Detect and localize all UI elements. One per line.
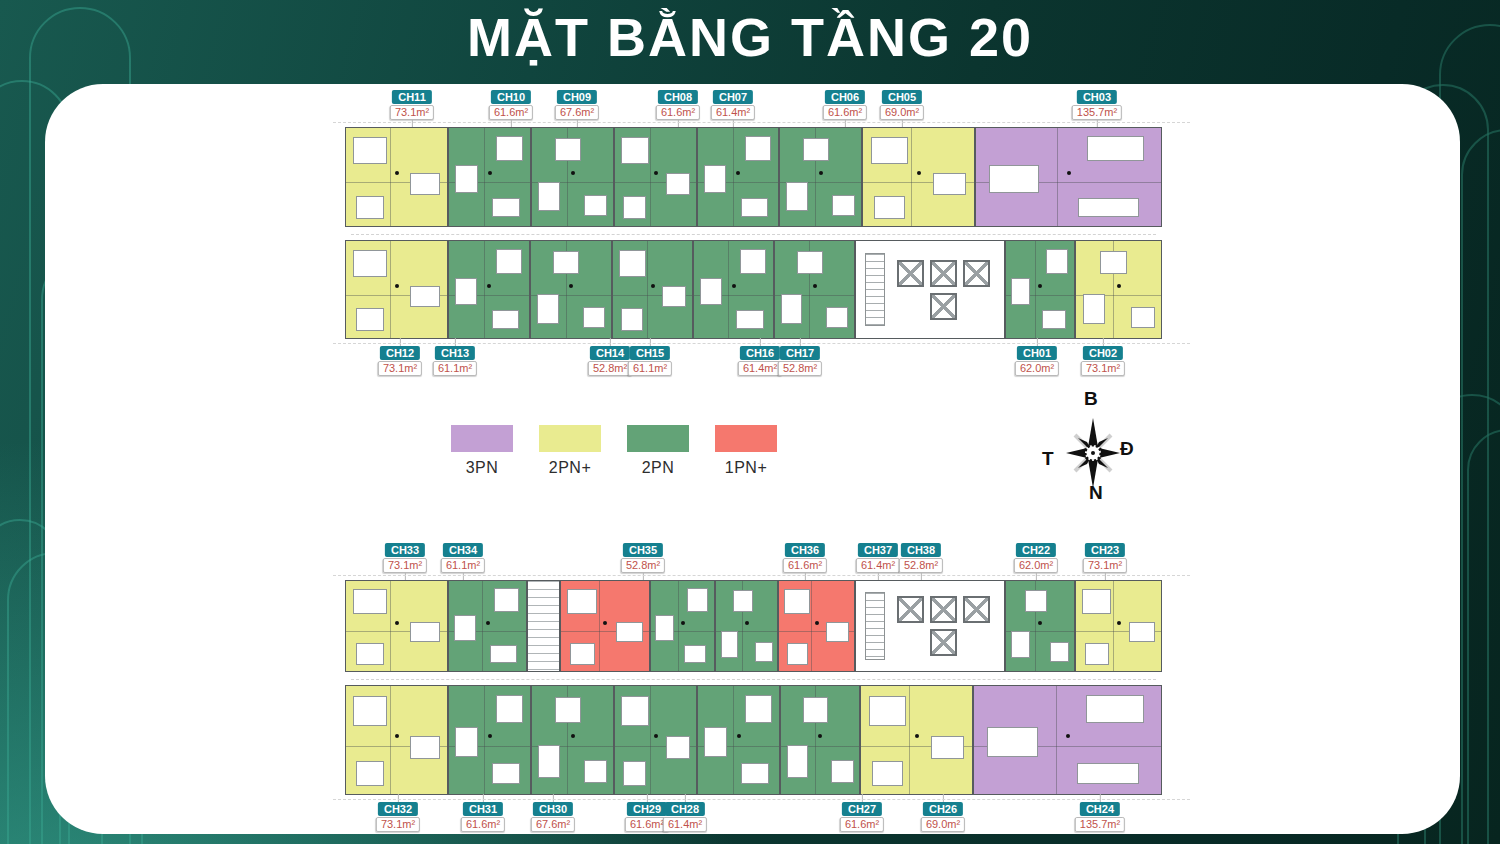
furniture-shape bbox=[797, 251, 823, 274]
page-title: MẶT BẰNG TẦNG 20 bbox=[0, 6, 1500, 68]
furniture-shape bbox=[741, 763, 769, 784]
leader-anchor-dot bbox=[571, 171, 575, 175]
unit-area: 67.6m² bbox=[531, 817, 575, 832]
furniture-shape bbox=[803, 138, 829, 162]
unit-CH37 bbox=[715, 580, 778, 672]
unit-label-CH30: CH3067.6m² bbox=[531, 802, 575, 832]
unit-label-CH07: CH0761.4m² bbox=[711, 90, 755, 120]
legend-item-2PN: 2PN bbox=[627, 425, 689, 477]
furniture-shape bbox=[555, 697, 581, 723]
unit-id-badge: CH02 bbox=[1083, 346, 1123, 360]
unit-id-badge: CH09 bbox=[557, 90, 597, 104]
unit-id-badge: CH35 bbox=[623, 543, 663, 557]
unit-CH27 bbox=[780, 685, 860, 795]
furniture-shape bbox=[356, 761, 384, 787]
label-row-below: CH1273.1m²CH1361.1m²CH1452.8m²CH1561.1m²… bbox=[345, 339, 1162, 381]
furniture-shape bbox=[869, 696, 907, 726]
unit-label-CH08: CH0861.6m² bbox=[656, 90, 700, 120]
furniture-shape bbox=[555, 138, 581, 162]
stairs bbox=[865, 253, 885, 326]
leader-anchor-dot bbox=[813, 284, 817, 288]
unit-CH13 bbox=[448, 240, 530, 339]
furniture-shape bbox=[721, 631, 738, 658]
unit-label-CH17: CH1752.8m² bbox=[778, 346, 822, 376]
unit-id-badge: CH10 bbox=[491, 90, 531, 104]
unit-CH29 bbox=[614, 685, 697, 795]
unit-id-badge: CH11 bbox=[392, 90, 432, 104]
furniture-shape bbox=[619, 250, 646, 277]
unit-label-CH34: CH3461.1m² bbox=[441, 543, 485, 573]
legend: 3PN2PN+2PN1PN+ bbox=[451, 425, 777, 477]
unit-area: 52.8m² bbox=[899, 558, 943, 573]
unit-area: 135.7m² bbox=[1075, 817, 1125, 832]
furniture-shape bbox=[356, 308, 384, 331]
furniture-shape bbox=[1086, 695, 1144, 723]
furniture-shape bbox=[826, 307, 849, 328]
legend-swatch bbox=[451, 425, 513, 452]
leader-anchor-dot bbox=[395, 171, 399, 175]
unit-label-CH02: CH0273.1m² bbox=[1081, 346, 1125, 376]
furniture-shape bbox=[872, 761, 903, 787]
furniture-shape bbox=[492, 763, 520, 784]
furniture-shape bbox=[621, 308, 644, 331]
furniture-shape bbox=[353, 250, 387, 277]
unit-area: 61.4m² bbox=[738, 361, 782, 376]
page: { "title": "MẶT BẰNG TẦNG 20", "legend":… bbox=[0, 0, 1500, 844]
unit-area: 73.1m² bbox=[1081, 361, 1125, 376]
unit-id-badge: CH22 bbox=[1016, 543, 1056, 557]
unit-id-badge: CH12 bbox=[380, 346, 420, 360]
unit-CH35 bbox=[560, 580, 650, 672]
furniture-shape bbox=[1011, 631, 1029, 658]
unit-id-badge: CH24 bbox=[1080, 802, 1120, 816]
elevator-bank bbox=[891, 260, 995, 320]
leader-anchor-dot bbox=[395, 621, 399, 625]
furniture-shape bbox=[1050, 642, 1070, 662]
unit-area: 73.1m² bbox=[1083, 558, 1127, 573]
unit-id-badge: CH05 bbox=[882, 90, 922, 104]
unit-label-CH15: CH1561.1m² bbox=[628, 346, 672, 376]
dashed-guide-line bbox=[333, 343, 1190, 344]
leader-anchor-dot bbox=[732, 284, 736, 288]
unit-CH09 bbox=[531, 127, 614, 227]
furniture-shape bbox=[1131, 307, 1155, 328]
legend-label: 2PN+ bbox=[549, 459, 591, 477]
leader-anchor-dot bbox=[1038, 284, 1042, 288]
dashed-guide-line bbox=[333, 575, 1190, 576]
unit-label-CH01: CH0162.0m² bbox=[1015, 346, 1059, 376]
furniture-shape bbox=[623, 196, 646, 220]
unit-id-badge: CH15 bbox=[630, 346, 670, 360]
leader-anchor-dot bbox=[488, 734, 492, 738]
furniture-shape bbox=[356, 196, 384, 220]
legend-item-3PN: 3PN bbox=[451, 425, 513, 477]
furniture-shape bbox=[826, 622, 849, 642]
furniture-shape bbox=[871, 137, 909, 164]
furniture-shape bbox=[745, 136, 771, 162]
unit-label-CH12: CH1273.1m² bbox=[378, 346, 422, 376]
leader-anchor-dot bbox=[737, 734, 741, 738]
furniture-shape bbox=[496, 695, 522, 723]
dashed-guide-line bbox=[333, 122, 1190, 123]
unit-area: 52.8m² bbox=[621, 558, 665, 573]
unit-area: 61.6m² bbox=[461, 817, 505, 832]
compass: B Đ N T bbox=[1044, 392, 1148, 504]
furniture-shape bbox=[704, 727, 727, 757]
furniture-shape bbox=[733, 590, 753, 612]
unit-id-badge: CH37 bbox=[858, 543, 898, 557]
furniture-shape bbox=[621, 137, 649, 164]
leader-anchor-dot bbox=[681, 621, 685, 625]
unit-id-badge: CH13 bbox=[435, 346, 475, 360]
unit-id-badge: CH36 bbox=[785, 543, 825, 557]
unit-CH08 bbox=[614, 127, 697, 227]
unit-CH30 bbox=[531, 685, 614, 795]
leader-anchor-dot bbox=[1066, 734, 1070, 738]
unit-id-badge: CH08 bbox=[658, 90, 698, 104]
compass-north-label: B bbox=[1084, 388, 1098, 410]
unit-id-badge: CH34 bbox=[443, 543, 483, 557]
unit-area: 61.6m² bbox=[783, 558, 827, 573]
furniture-shape bbox=[989, 165, 1039, 192]
furniture-shape bbox=[455, 165, 478, 192]
leader-anchor-dot bbox=[487, 284, 491, 288]
leader-anchor-dot bbox=[917, 171, 921, 175]
furniture-shape bbox=[538, 745, 559, 777]
unit-area: 73.1m² bbox=[390, 105, 434, 120]
elevator-core bbox=[855, 240, 1005, 339]
unit-CH33 bbox=[345, 580, 448, 672]
furniture-shape bbox=[455, 727, 478, 757]
unit-id-badge: CH28 bbox=[665, 802, 705, 816]
leader-anchor-dot bbox=[1117, 621, 1121, 625]
furniture-shape bbox=[353, 696, 387, 726]
dashed-guide-line bbox=[333, 799, 1190, 800]
furniture-shape bbox=[492, 310, 520, 329]
furniture-shape bbox=[553, 251, 579, 274]
furniture-shape bbox=[353, 137, 387, 164]
unit-row bbox=[345, 127, 1162, 227]
unit-id-badge: CH14 bbox=[590, 346, 630, 360]
furniture-shape bbox=[784, 589, 810, 614]
leader-anchor-dot bbox=[736, 171, 740, 175]
unit-label-CH24: CH24135.7m² bbox=[1075, 802, 1125, 832]
leader-anchor-dot bbox=[651, 284, 655, 288]
unit-area: 61.4m² bbox=[856, 558, 900, 573]
unit-CH02 bbox=[1075, 240, 1162, 339]
furniture-shape bbox=[410, 173, 440, 195]
unit-id-badge: CH33 bbox=[385, 543, 425, 557]
unit-label-CH11: CH1173.1m² bbox=[390, 90, 434, 120]
unit-area: 135.7m² bbox=[1072, 105, 1122, 120]
furniture-shape bbox=[616, 622, 643, 642]
furniture-shape bbox=[494, 588, 519, 612]
furniture-shape bbox=[786, 182, 807, 211]
leader-anchor-dot bbox=[1067, 171, 1071, 175]
furniture-shape bbox=[1082, 589, 1111, 614]
furniture-shape bbox=[1083, 294, 1105, 323]
unit-label-CH10: CH1061.6m² bbox=[489, 90, 533, 120]
furniture-shape bbox=[584, 760, 607, 784]
furniture-shape bbox=[1011, 278, 1031, 305]
unit-area: 73.1m² bbox=[383, 558, 427, 573]
unit-area: 61.6m² bbox=[840, 817, 884, 832]
elevator-icon bbox=[963, 260, 990, 287]
legend-label: 3PN bbox=[466, 459, 499, 477]
unit-id-badge: CH38 bbox=[901, 543, 941, 557]
legend-swatch bbox=[627, 425, 689, 452]
leader-anchor-dot bbox=[1117, 284, 1121, 288]
unit-CH23 bbox=[1075, 580, 1162, 672]
furniture-shape bbox=[666, 736, 691, 760]
unit-CH10 bbox=[448, 127, 531, 227]
unit-label-CH22: CH2262.0m² bbox=[1014, 543, 1058, 573]
building-strip bbox=[345, 580, 1162, 795]
unit-label-CH33: CH3373.1m² bbox=[383, 543, 427, 573]
unit-id-badge: CH01 bbox=[1017, 346, 1057, 360]
unit-area: 62.0m² bbox=[1015, 361, 1059, 376]
furniture-shape bbox=[1129, 622, 1155, 642]
furniture-shape bbox=[1078, 198, 1139, 218]
furniture-shape bbox=[1042, 310, 1066, 329]
leader-anchor-dot bbox=[818, 734, 822, 738]
unit-label-CH23: CH2373.1m² bbox=[1083, 543, 1127, 573]
floor-plan-top-wing: CH1173.1m²CH1061.6m²CH0967.6m²CH0861.6m²… bbox=[345, 88, 1162, 381]
elevator-icon bbox=[930, 596, 957, 623]
unit-label-CH32: CH3273.1m² bbox=[376, 802, 420, 832]
unit-area: 69.0m² bbox=[880, 105, 924, 120]
unit-area: 69.0m² bbox=[921, 817, 965, 832]
legend-item-2PN+: 2PN+ bbox=[539, 425, 601, 477]
furniture-shape bbox=[666, 173, 691, 195]
unit-CH07 bbox=[697, 127, 779, 227]
leader-anchor-dot bbox=[571, 734, 575, 738]
label-row-below: CH3273.1m²CH3161.6m²CH3067.6m²CH2961.6m²… bbox=[345, 795, 1162, 837]
furniture-shape bbox=[455, 278, 478, 305]
unit-area: 67.6m² bbox=[555, 105, 599, 120]
furniture-shape bbox=[623, 761, 646, 787]
leader-anchor-dot bbox=[395, 734, 399, 738]
furniture-shape bbox=[684, 645, 706, 663]
unit-id-badge: CH16 bbox=[740, 346, 780, 360]
furniture-shape bbox=[410, 736, 440, 760]
legend-item-1PN+: 1PN+ bbox=[715, 425, 777, 477]
unit-label-CH35: CH3552.8m² bbox=[621, 543, 665, 573]
unit-id-badge: CH06 bbox=[825, 90, 865, 104]
unit-CH34 bbox=[448, 580, 527, 672]
unit-label-CH38: CH3852.8m² bbox=[899, 543, 943, 573]
unit-label-CH16: CH1661.4m² bbox=[738, 346, 782, 376]
furniture-shape bbox=[931, 736, 964, 760]
unit-label-CH14: CH1452.8m² bbox=[588, 346, 632, 376]
unit-id-badge: CH29 bbox=[627, 802, 667, 816]
unit-area: 61.6m² bbox=[823, 105, 867, 120]
unit-row bbox=[345, 580, 1162, 672]
stairwell bbox=[527, 580, 560, 672]
unit-row bbox=[345, 240, 1162, 339]
furniture-shape bbox=[1100, 251, 1128, 274]
leader-anchor-dot bbox=[654, 171, 658, 175]
unit-area: 52.8m² bbox=[778, 361, 822, 376]
unit-CH12 bbox=[345, 240, 448, 339]
unit-CH03 bbox=[975, 127, 1162, 227]
leader-anchor-dot bbox=[819, 171, 823, 175]
furniture-shape bbox=[687, 588, 708, 612]
stairs bbox=[865, 592, 885, 659]
furniture-shape bbox=[410, 622, 440, 642]
furniture-shape bbox=[621, 696, 649, 726]
furniture-shape bbox=[583, 307, 606, 328]
leader-anchor-dot bbox=[395, 284, 399, 288]
corridor bbox=[345, 227, 1162, 240]
furniture-shape bbox=[655, 615, 673, 640]
compass-east-label: Đ bbox=[1120, 438, 1134, 460]
furniture-shape bbox=[1087, 136, 1145, 162]
unit-CH14 bbox=[530, 240, 612, 339]
unit-label-CH36: CH3661.6m² bbox=[783, 543, 827, 573]
elevator-icon bbox=[963, 596, 990, 623]
unit-label-CH09: CH0967.6m² bbox=[555, 90, 599, 120]
unit-label-CH28: CH2861.4m² bbox=[663, 802, 707, 832]
compass-south-label: N bbox=[1089, 482, 1103, 504]
furniture-shape bbox=[570, 643, 595, 665]
furniture-shape bbox=[410, 286, 440, 307]
unit-CH32 bbox=[345, 685, 448, 795]
unit-id-badge: CH17 bbox=[780, 346, 820, 360]
unit-CH36 bbox=[650, 580, 715, 672]
furniture-shape bbox=[490, 645, 517, 663]
furniture-shape bbox=[496, 136, 522, 162]
unit-CH15 bbox=[612, 240, 693, 339]
leader-anchor-dot bbox=[815, 621, 819, 625]
unit-CH22 bbox=[1005, 580, 1075, 672]
unit-area: 61.6m² bbox=[489, 105, 533, 120]
unit-CH28 bbox=[697, 685, 780, 795]
unit-id-badge: CH27 bbox=[842, 802, 882, 816]
unit-area: 61.1m² bbox=[433, 361, 477, 376]
unit-CH26 bbox=[860, 685, 973, 795]
furniture-shape bbox=[736, 310, 763, 329]
furniture-shape bbox=[1085, 643, 1109, 665]
floor-plan-bottom-wing: CH3373.1m²CH3461.1m²CH3552.8m²CH3661.6m²… bbox=[345, 543, 1162, 837]
furniture-shape bbox=[745, 695, 771, 723]
leader-anchor-dot bbox=[915, 734, 919, 738]
elevator-icon bbox=[930, 293, 957, 320]
furniture-shape bbox=[874, 196, 905, 220]
furniture-shape bbox=[1077, 763, 1139, 784]
unit-area: 61.1m² bbox=[441, 558, 485, 573]
unit-area: 61.1m² bbox=[628, 361, 672, 376]
unit-id-badge: CH26 bbox=[923, 802, 963, 816]
furniture-shape bbox=[741, 198, 769, 218]
unit-area: 62.0m² bbox=[1014, 558, 1058, 573]
unit-id-badge: CH31 bbox=[463, 802, 503, 816]
unit-area: 61.6m² bbox=[656, 105, 700, 120]
furniture-shape bbox=[755, 642, 773, 662]
unit-CH17 bbox=[774, 240, 855, 339]
furniture-shape bbox=[662, 286, 686, 307]
unit-id-badge: CH03 bbox=[1077, 90, 1117, 104]
unit-label-CH06: CH0661.6m² bbox=[823, 90, 867, 120]
unit-area: 52.8m² bbox=[588, 361, 632, 376]
unit-CH24 bbox=[973, 685, 1162, 795]
unit-label-CH37: CH3761.4m² bbox=[856, 543, 900, 573]
furniture-shape bbox=[1046, 249, 1068, 274]
unit-label-CH05: CH0569.0m² bbox=[880, 90, 924, 120]
unit-label-CH27: CH2761.6m² bbox=[840, 802, 884, 832]
unit-id-badge: CH23 bbox=[1085, 543, 1125, 557]
furniture-shape bbox=[787, 745, 808, 777]
legend-swatch bbox=[539, 425, 601, 452]
unit-CH05 bbox=[862, 127, 975, 227]
unit-label-CH31: CH3161.6m² bbox=[461, 802, 505, 832]
furniture-shape bbox=[567, 589, 597, 614]
unit-label-CH13: CH1361.1m² bbox=[433, 346, 477, 376]
furniture-shape bbox=[353, 589, 387, 614]
corridor bbox=[345, 672, 1162, 685]
unit-id-badge: CH30 bbox=[533, 802, 573, 816]
elevator-core bbox=[855, 580, 1005, 672]
unit-id-badge: CH32 bbox=[378, 802, 418, 816]
unit-CH01 bbox=[1005, 240, 1075, 339]
elevator-icon bbox=[897, 260, 924, 287]
leader-anchor-dot bbox=[488, 171, 492, 175]
unit-label-CH26: CH2669.0m² bbox=[921, 802, 965, 832]
furniture-shape bbox=[832, 195, 855, 217]
furniture-shape bbox=[781, 294, 802, 323]
furniture-shape bbox=[704, 165, 727, 192]
furniture-shape bbox=[700, 278, 723, 305]
legend-label: 1PN+ bbox=[725, 459, 767, 477]
unit-CH31 bbox=[448, 685, 531, 795]
furniture-shape bbox=[538, 182, 559, 211]
furniture-shape bbox=[933, 173, 966, 195]
legend-label: 2PN bbox=[642, 459, 675, 477]
furniture-shape bbox=[787, 643, 809, 665]
unit-area: 73.1m² bbox=[376, 817, 420, 832]
furniture-shape bbox=[803, 697, 828, 723]
unit-CH11 bbox=[345, 127, 448, 227]
unit-row bbox=[345, 685, 1162, 795]
unit-CH06 bbox=[779, 127, 862, 227]
unit-area: 61.4m² bbox=[663, 817, 707, 832]
furniture-shape bbox=[740, 249, 766, 274]
elevator-icon bbox=[930, 629, 957, 656]
elevator-bank bbox=[891, 596, 995, 656]
furniture-shape bbox=[537, 294, 558, 323]
unit-area: 73.1m² bbox=[378, 361, 422, 376]
leader-anchor-dot bbox=[1038, 621, 1042, 625]
building-strip bbox=[345, 127, 1162, 339]
furniture-shape bbox=[496, 249, 522, 274]
compass-west-label: T bbox=[1042, 448, 1054, 470]
elevator-icon bbox=[897, 596, 924, 623]
furniture-shape bbox=[492, 198, 520, 218]
furniture-shape bbox=[987, 727, 1038, 757]
leader-anchor-dot bbox=[569, 284, 573, 288]
unit-CH16 bbox=[693, 240, 774, 339]
unit-CH38 bbox=[778, 580, 855, 672]
leader-anchor-dot bbox=[654, 734, 658, 738]
furniture-shape bbox=[584, 195, 607, 217]
unit-label-CH03: CH03135.7m² bbox=[1072, 90, 1122, 120]
elevator-icon bbox=[930, 260, 957, 287]
leader-anchor-dot bbox=[603, 621, 607, 625]
furniture-shape bbox=[831, 760, 853, 784]
furniture-shape bbox=[356, 643, 384, 665]
unit-area: 61.4m² bbox=[711, 105, 755, 120]
leader-anchor-dot bbox=[745, 621, 749, 625]
